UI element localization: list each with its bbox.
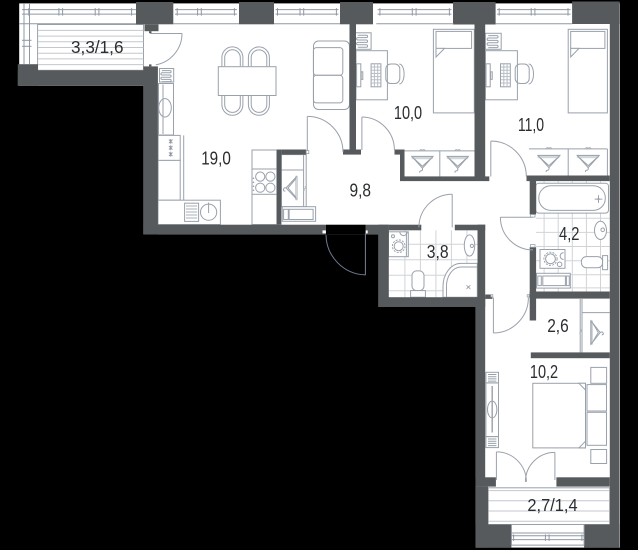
- svg-text:3,3/1,6: 3,3/1,6: [71, 37, 124, 57]
- svg-text:11,0: 11,0: [518, 114, 544, 135]
- svg-text:19,0: 19,0: [201, 148, 231, 169]
- svg-text:10,0: 10,0: [394, 102, 422, 123]
- svg-text:10,2: 10,2: [530, 361, 558, 382]
- svg-text:4,2: 4,2: [559, 223, 580, 244]
- svg-text:9,8: 9,8: [350, 180, 372, 201]
- svg-text:2,7/1,4: 2,7/1,4: [527, 495, 577, 515]
- svg-text:2,6: 2,6: [547, 315, 569, 336]
- svg-text:3,8: 3,8: [427, 241, 449, 262]
